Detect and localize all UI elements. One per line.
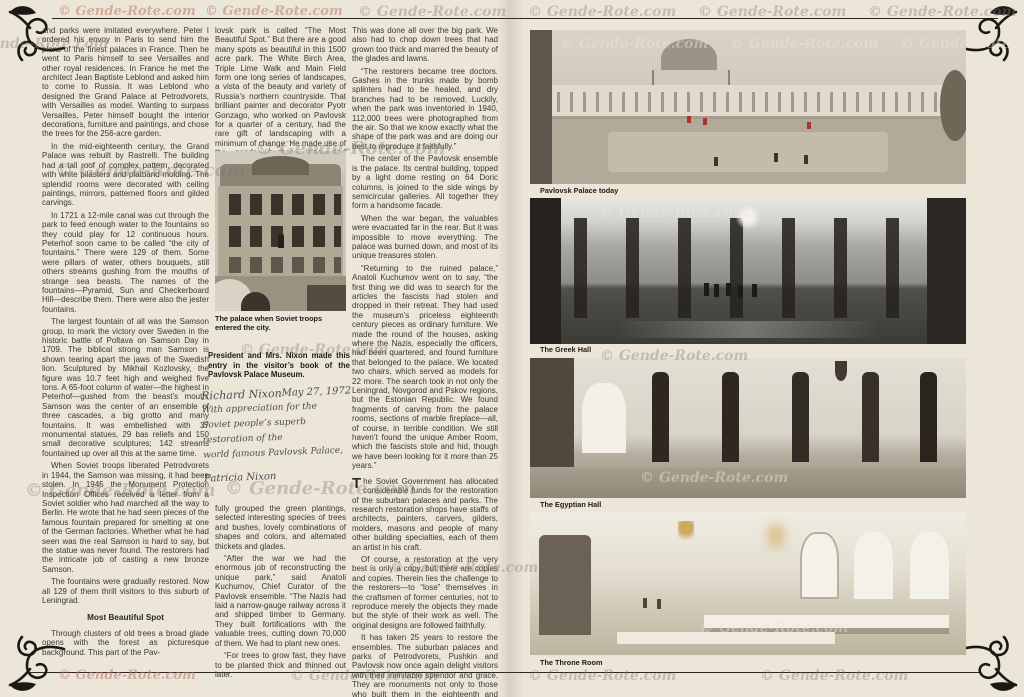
corner-flourish-icon	[958, 4, 1020, 66]
text-column-2-bottom: fully grouped the green plantings, selec…	[215, 504, 346, 682]
photo-statue	[652, 372, 669, 462]
paragraph: “For trees to grow fast, they have to be…	[215, 651, 346, 679]
page-fold-shadow	[498, 0, 524, 697]
signature: Patricia Nixon	[204, 466, 354, 486]
photo-figure	[774, 153, 778, 162]
photo-flag	[687, 116, 691, 123]
photo-caption: The palace when Soviet troops entered th…	[215, 314, 346, 332]
photo-tree	[530, 30, 552, 184]
photo-doorway	[539, 535, 591, 635]
section-heading: Most Beautiful Spot	[42, 613, 209, 622]
photo-figure	[704, 283, 709, 296]
corner-flourish-icon	[958, 631, 1020, 693]
photo-figure	[643, 598, 647, 608]
photo-throne-room	[530, 512, 966, 655]
watermark: © Gende-Rote.com	[760, 668, 908, 684]
paragraph: The largest fountain of all was the Sams…	[42, 317, 209, 458]
paragraph: It has taken 25 years to restore the ens…	[352, 633, 498, 697]
paragraph: When Soviet troops liberated Petrodvoret…	[42, 461, 209, 574]
photo-figure	[278, 234, 284, 248]
paragraph: This was done all over the big park. We …	[352, 26, 498, 64]
handwritten-note: Richard Nixon May 27, 1972 With apprecia…	[201, 383, 355, 506]
drop-cap: T	[352, 477, 361, 490]
photo-credit: President and Mrs. Nixon made this entry…	[208, 351, 350, 380]
paragraph: Of course, a restoration at the very bes…	[352, 555, 498, 630]
watermark: © Gende-Rote.com	[58, 4, 196, 19]
paragraph: lovsk park is called “The Most Beautiful…	[215, 26, 346, 167]
handwritten-date: May 27, 1972	[281, 383, 351, 400]
photo-window	[582, 383, 626, 453]
photo-shape	[307, 285, 346, 311]
photo-lamp	[835, 361, 847, 381]
photo-tree	[940, 70, 966, 141]
photo-column	[927, 198, 966, 344]
photo-shape	[547, 92, 948, 112]
photo-chandelier	[735, 204, 761, 230]
photo-caption: Pavlovsk Palace today	[540, 186, 618, 195]
photo-ruined-palace	[215, 151, 346, 311]
photo-column	[530, 198, 561, 344]
photo-table	[617, 632, 835, 643]
photo-shape	[574, 218, 923, 317]
photo-floor-shine	[617, 321, 879, 339]
watermark: © Gende-Rote.com	[58, 668, 196, 683]
photo-shape	[220, 257, 341, 273]
watermark: © Gende-Rote.com	[528, 668, 676, 684]
paragraph: and parks were imitated everywhere. Pete…	[42, 26, 209, 139]
photo-shape	[220, 194, 341, 215]
text-column-2-top: lovsk park is called “The Most Beautiful…	[215, 26, 346, 170]
photo-egyptian-hall	[530, 358, 966, 498]
paragraph: The center of the Pavlovsk ensemble is t…	[352, 154, 498, 210]
photo-pavlovsk-palace-today	[530, 30, 966, 184]
paragraph: “Returning to the ruined palace,” Anatol…	[352, 264, 498, 471]
paragraph: The fountains were gradually restored. N…	[42, 577, 209, 605]
paragraph: fully grouped the green plantings, selec…	[215, 504, 346, 551]
frame-top-rule	[52, 18, 998, 19]
paragraph: In the mid-eighteenth century, the Grand…	[42, 142, 209, 208]
photo-caption: The Egyptian Hall	[540, 500, 601, 509]
photo-shape	[530, 467, 966, 498]
paragraph-text: he Soviet Government has allocated consi…	[352, 477, 498, 552]
paragraph: “The restorers became tree doctors. Gash…	[352, 67, 498, 152]
paragraph: Through clusters of old trees a broad gl…	[42, 629, 209, 657]
photo-shape	[252, 156, 310, 175]
photo-chandelier	[678, 521, 694, 543]
magazine-spread: and parks were imitated everywhere. Pete…	[0, 0, 1024, 697]
paragraph: In 1721 a 12-mile canal was cut through …	[42, 211, 209, 314]
photo-caption: The Greek Hall	[540, 345, 591, 354]
text-column-1: and parks were imitated everywhere. Pete…	[42, 26, 209, 660]
photo-table	[704, 615, 948, 628]
photo-window	[800, 532, 839, 599]
text-column-3: This was done all over the big park. We …	[352, 26, 498, 697]
paragraph-with-dropcap: The Soviet Government has allocated cons…	[352, 477, 498, 552]
paragraph: When the war began, the valuables were e…	[352, 214, 498, 261]
photo-caption: The Throne Room	[540, 658, 602, 667]
paragraph: “After the war we had the enormous job o…	[215, 554, 346, 648]
photo-greek-hall	[530, 198, 966, 344]
watermark: © Gende-Rote.com	[205, 4, 343, 19]
photo-shape	[608, 132, 887, 172]
